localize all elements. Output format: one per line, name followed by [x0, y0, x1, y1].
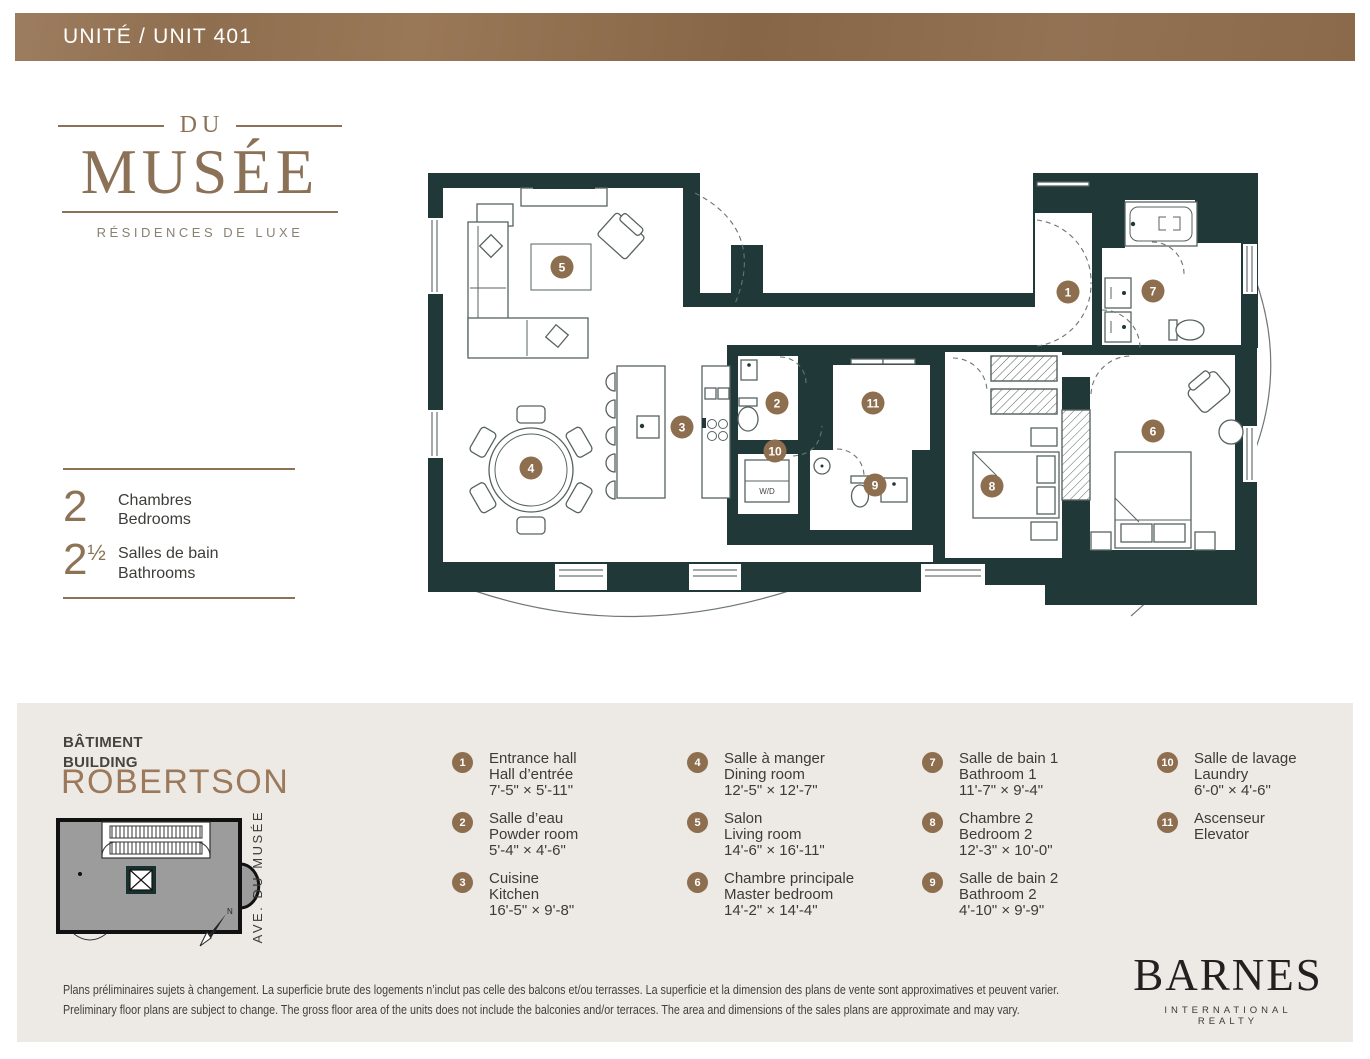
logo-tagline: RÉSIDENCES DE LUXE [58, 225, 342, 240]
legend-item: 1Entrance hallHall d’entrée7'-5" × 5'-11… [452, 751, 687, 799]
floorplan-sheet: UNITÉ / UNIT 401 DU MUSÉE RÉSIDENCES DE … [0, 0, 1370, 1059]
legend-item: 7Salle de bain 1Bathroom 111'-7" × 9'-4" [922, 751, 1157, 799]
legend-line: Ascenseur [1194, 811, 1265, 827]
stat-bedrooms-labels: ChambresBedrooms [118, 486, 192, 529]
logo-prefix: DU [176, 112, 225, 139]
legend-line: Bathroom 1 [959, 767, 1058, 783]
room-number-badge: 2 [452, 812, 473, 833]
logo-underline [62, 211, 338, 213]
unit-stats: 2 ChambresBedrooms 2½ Salles de bainBath… [63, 468, 295, 599]
legend-line: Kitchen [489, 887, 574, 903]
room-number-badge: 4 [687, 752, 708, 773]
room-marker: 11 [862, 392, 885, 415]
legend-line: Salle de bain 1 [959, 751, 1058, 767]
brand-logo: DU MUSÉE RÉSIDENCES DE LUXE [58, 112, 342, 240]
stat-bathrooms-value: 2½ [63, 539, 118, 582]
logo-rule-left [58, 125, 164, 127]
room-marker: 2 [766, 392, 789, 415]
disclaimer-en: Preliminary floor plans are subject to c… [63, 1000, 949, 1020]
legend: 1Entrance hallHall d’entrée7'-5" × 5'-11… [452, 751, 1370, 931]
legend-line: Powder room [489, 827, 578, 843]
legend-line: 11'-7" × 9'-4" [959, 783, 1058, 799]
legend-item: 10Salle de lavageLaundry6'-0" × 4'-6" [1157, 751, 1370, 799]
legend-line: Chambre 2 [959, 811, 1053, 827]
legend-line: 12'-3" × 10'-0" [959, 843, 1053, 859]
legend-item: 8Chambre 2Bedroom 212'-3" × 10'-0" [922, 811, 1157, 859]
legend-item: 9Salle de bain 2Bathroom 24'-10" × 9'-9" [922, 871, 1157, 919]
legend-item: 5SalonLiving room14'-6" × 16'-11" [687, 811, 922, 859]
room-marker: 4 [520, 457, 543, 480]
entry-door [1037, 182, 1089, 186]
disclaimer-fr: Plans préliminaires sujets à changement.… [63, 980, 949, 1000]
logo-du-row: DU [58, 112, 342, 139]
legend-lines: SalonLiving room14'-6" × 16'-11" [724, 811, 825, 859]
stat-bedrooms: 2 ChambresBedrooms [63, 486, 295, 529]
room-marker: 3 [671, 416, 694, 439]
unit-header-band: UNITÉ / UNIT 401 [15, 13, 1355, 61]
street-label: AVE. DU MUSÉE [250, 803, 265, 951]
legend-column: 4Salle à mangerDining room12'-5" × 12'-7… [687, 751, 922, 931]
room-marker: 9 [864, 474, 887, 497]
footer-panel: BÂTIMENT BUILDING ROBERTSON [17, 703, 1353, 1042]
legend-column: 10Salle de lavageLaundry6'-0" × 4'-6"11A… [1157, 751, 1370, 931]
legend-item: 6Chambre principaleMaster bedroom14'-2" … [687, 871, 922, 919]
legend-lines: Chambre principaleMaster bedroom14'-2" ×… [724, 871, 854, 919]
legend-line: 12'-5" × 12'-7" [724, 783, 825, 799]
legend-lines: Salle à mangerDining room12'-5" × 12'-7" [724, 751, 825, 799]
legend-column: 7Salle de bain 1Bathroom 111'-7" × 9'-4"… [922, 751, 1157, 931]
legend-line: Salon [724, 811, 825, 827]
legend-line: Hall d’entrée [489, 767, 577, 783]
legend-line: Master bedroom [724, 887, 854, 903]
legend-line: Living room [724, 827, 825, 843]
legend-line: 7'-5" × 5'-11" [489, 783, 577, 799]
unit-title: UNITÉ / UNIT 401 [63, 25, 252, 49]
room-marker: 1 [1057, 281, 1080, 304]
stat-bathrooms-labels: Salles de bainBathrooms [118, 539, 219, 582]
legend-lines: Entrance hallHall d’entrée7'-5" × 5'-11" [489, 751, 577, 799]
legend-line: Dining room [724, 767, 825, 783]
legend-line: Salle d’eau [489, 811, 578, 827]
room-number-badge: 7 [922, 752, 943, 773]
legend-item: 3CuisineKitchen16'-5" × 9'-8" [452, 871, 687, 919]
legend-line: Salle à manger [724, 751, 825, 767]
room-marker: 8 [981, 475, 1004, 498]
legend-line: 4'-10" × 9'-9" [959, 903, 1058, 919]
legend-line: Chambre principale [724, 871, 854, 887]
legend-lines: Salle de bain 1Bathroom 111'-7" × 9'-4" [959, 751, 1058, 799]
legend-line: 16'-5" × 9'-8" [489, 903, 574, 919]
room-marker: 10 [764, 440, 787, 463]
laundry-fixtures: W/D [745, 460, 789, 502]
legend-lines: CuisineKitchen16'-5" × 9'-8" [489, 871, 574, 919]
legend-line: Elevator [1194, 827, 1265, 843]
legend-item: 2Salle d’eauPowder room5'-4" × 4'-6" [452, 811, 687, 859]
legend-item: 4Salle à mangerDining room12'-5" × 12'-7… [687, 751, 922, 799]
room-number-badge: 9 [922, 872, 943, 893]
legend-line: Salle de bain 2 [959, 871, 1058, 887]
legend-line: 14'-2" × 14'-4" [724, 903, 854, 919]
legend-item: 11AscenseurElevator [1157, 811, 1370, 843]
legend-lines: AscenseurElevator [1194, 811, 1265, 843]
building-name: ROBERTSON [61, 763, 289, 802]
legend-line: Entrance hall [489, 751, 577, 767]
legend-line: Cuisine [489, 871, 574, 887]
legend-lines: Salle de bain 2Bathroom 24'-10" × 9'-9" [959, 871, 1058, 919]
room-number-badge: 8 [922, 812, 943, 833]
svg-text:N: N [227, 907, 233, 916]
room-number-badge: 5 [687, 812, 708, 833]
barnes-subtitle: INTERNATIONAL REALTY [1133, 1005, 1323, 1027]
logo-name: MUSÉE [58, 139, 342, 205]
legend-line: 6'-0" × 4'-6" [1194, 783, 1297, 799]
legend-line: 14'-6" × 16'-11" [724, 843, 825, 859]
stat-bathrooms: 2½ Salles de bainBathrooms [63, 539, 295, 582]
room-number-badge: 1 [452, 752, 473, 773]
legend-lines: Salle d’eauPowder room5'-4" × 4'-6" [489, 811, 578, 859]
room-number-badge: 10 [1157, 752, 1178, 773]
legend-line: Laundry [1194, 767, 1297, 783]
room-number-badge: 3 [452, 872, 473, 893]
elevator-doors [851, 359, 915, 364]
barnes-logo: BARNES INTERNATIONAL REALTY [1133, 953, 1323, 1027]
legend-lines: Salle de lavageLaundry6'-0" × 4'-6" [1194, 751, 1297, 799]
legend-line: 5'-4" × 4'-6" [489, 843, 578, 859]
room-number-badge: 11 [1157, 812, 1178, 833]
legend-line: Bedroom 2 [959, 827, 1053, 843]
room-number-badge: 6 [687, 872, 708, 893]
legend-line: Bathroom 2 [959, 887, 1058, 903]
legend-lines: Chambre 2Bedroom 212'-3" × 10'-0" [959, 811, 1053, 859]
site-plan: N [50, 806, 280, 951]
disclaimer: Plans préliminaires sujets à changement.… [63, 980, 949, 1021]
svg-text:W/D: W/D [759, 487, 775, 496]
floor-plan: W/D [425, 160, 1305, 640]
room-marker: 7 [1142, 280, 1165, 303]
barnes-name: BARNES [1133, 953, 1323, 998]
logo-rule-right [236, 125, 342, 127]
room-marker: 5 [551, 256, 574, 279]
legend-column: 1Entrance hallHall d’entrée7'-5" × 5'-11… [452, 751, 687, 931]
legend-line: Salle de lavage [1194, 751, 1297, 767]
room-marker: 6 [1142, 420, 1165, 443]
stat-bedrooms-value: 2 [63, 486, 118, 529]
